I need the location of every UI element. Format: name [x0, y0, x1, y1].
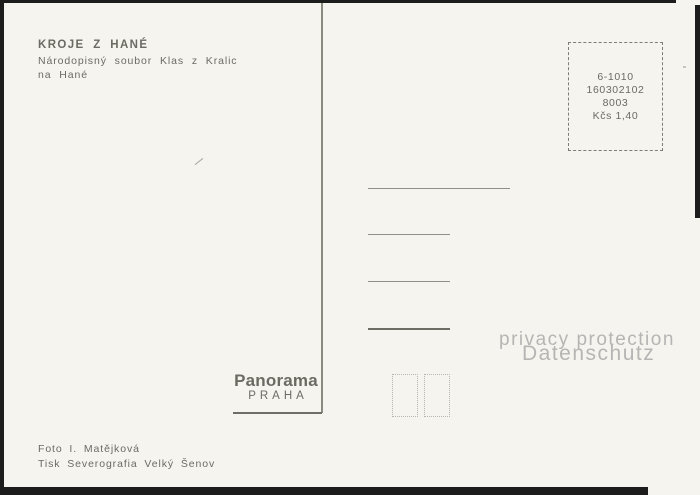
scan-edge-right	[695, 5, 700, 218]
stamp-series-line: 8003	[603, 97, 629, 110]
postcard-subtitle-line2: na Hané	[38, 69, 237, 83]
scan-edge-left	[0, 0, 4, 495]
dust-speck	[683, 66, 686, 68]
stamp-price-line: Kčs 1,40	[593, 110, 639, 123]
postcard-title: KROJE Z HANÉ	[38, 39, 237, 51]
credits-block: Foto I. Matějková Tisk Severografia Velk…	[38, 442, 215, 471]
stamp-code-line: 6-1010	[597, 71, 633, 84]
print-credit: Tisk Severografia Velký Šenov	[38, 457, 215, 472]
privacy-watermark-line2: Datenschutz	[522, 342, 655, 366]
publisher-name: Panorama	[232, 372, 320, 390]
center-divider-line	[321, 3, 323, 413]
address-line-1	[368, 188, 510, 189]
scan-edge-top	[0, 0, 676, 3]
postal-code-box-1	[392, 374, 418, 417]
caption-block: KROJE Z HANÉ Národopisný soubor Klas z K…	[38, 39, 237, 82]
publisher-underline	[233, 412, 322, 414]
scan-edge-bottom	[0, 487, 648, 495]
address-line-4	[368, 328, 450, 330]
scratch-mark	[195, 158, 204, 165]
stamp-number-line: 160302102	[587, 84, 645, 97]
publisher-city: PRAHA	[232, 390, 320, 402]
address-line-3	[368, 281, 450, 282]
photo-credit: Foto I. Matějková	[38, 442, 215, 457]
postcard-back: KROJE Z HANÉ Národopisný soubor Klas z K…	[0, 0, 700, 495]
publisher-logo: Panorama PRAHA	[232, 372, 320, 402]
stamp-box: 6-1010 160302102 8003 Kčs 1,40	[568, 42, 663, 151]
postal-code-box-2	[424, 374, 450, 417]
postcard-subtitle-line1: Národopisný soubor Klas z Kralic	[38, 55, 237, 69]
address-line-2	[368, 234, 450, 235]
